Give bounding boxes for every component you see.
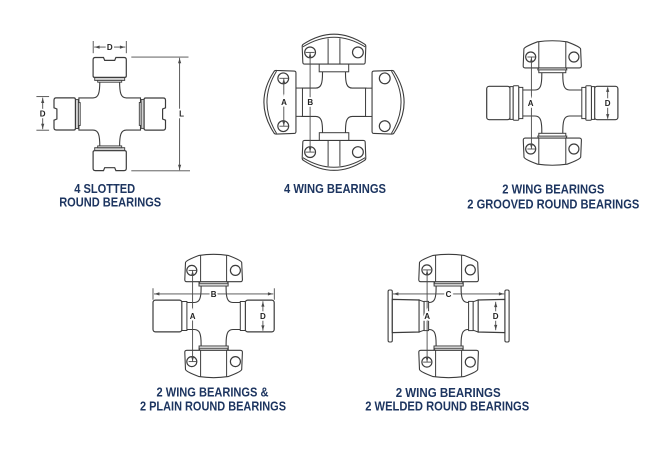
svg-text:A: A xyxy=(424,312,430,321)
svg-text:D: D xyxy=(107,43,113,52)
svg-text:A: A xyxy=(281,98,287,107)
svg-text:2 WING BEARINGS: 2 WING BEARINGS xyxy=(502,181,604,196)
svg-text:B: B xyxy=(211,290,217,299)
svg-text:C: C xyxy=(446,290,452,299)
svg-text:2 WING BEARINGS &: 2 WING BEARINGS & xyxy=(157,385,269,400)
svg-text:2 GROOVED ROUND BEARINGS: 2 GROOVED ROUND BEARINGS xyxy=(467,196,639,211)
svg-text:2 WELDED ROUND BEARINGS: 2 WELDED ROUND BEARINGS xyxy=(365,399,529,414)
svg-text:D: D xyxy=(40,109,46,118)
svg-text:D: D xyxy=(605,99,611,108)
svg-text:D: D xyxy=(260,312,266,321)
svg-text:A: A xyxy=(528,99,534,108)
svg-text:A: A xyxy=(190,312,196,321)
svg-text:B: B xyxy=(307,98,313,107)
svg-text:L: L xyxy=(179,110,184,119)
svg-text:2 PLAIN ROUND BEARINGS: 2 PLAIN ROUND BEARINGS xyxy=(140,399,286,414)
svg-text:ROUND BEARINGS: ROUND BEARINGS xyxy=(59,195,161,210)
svg-text:2 WING BEARINGS: 2 WING BEARINGS xyxy=(396,385,501,400)
svg-text:D: D xyxy=(493,312,499,321)
svg-text:4 WING BEARINGS: 4 WING BEARINGS xyxy=(284,181,386,196)
